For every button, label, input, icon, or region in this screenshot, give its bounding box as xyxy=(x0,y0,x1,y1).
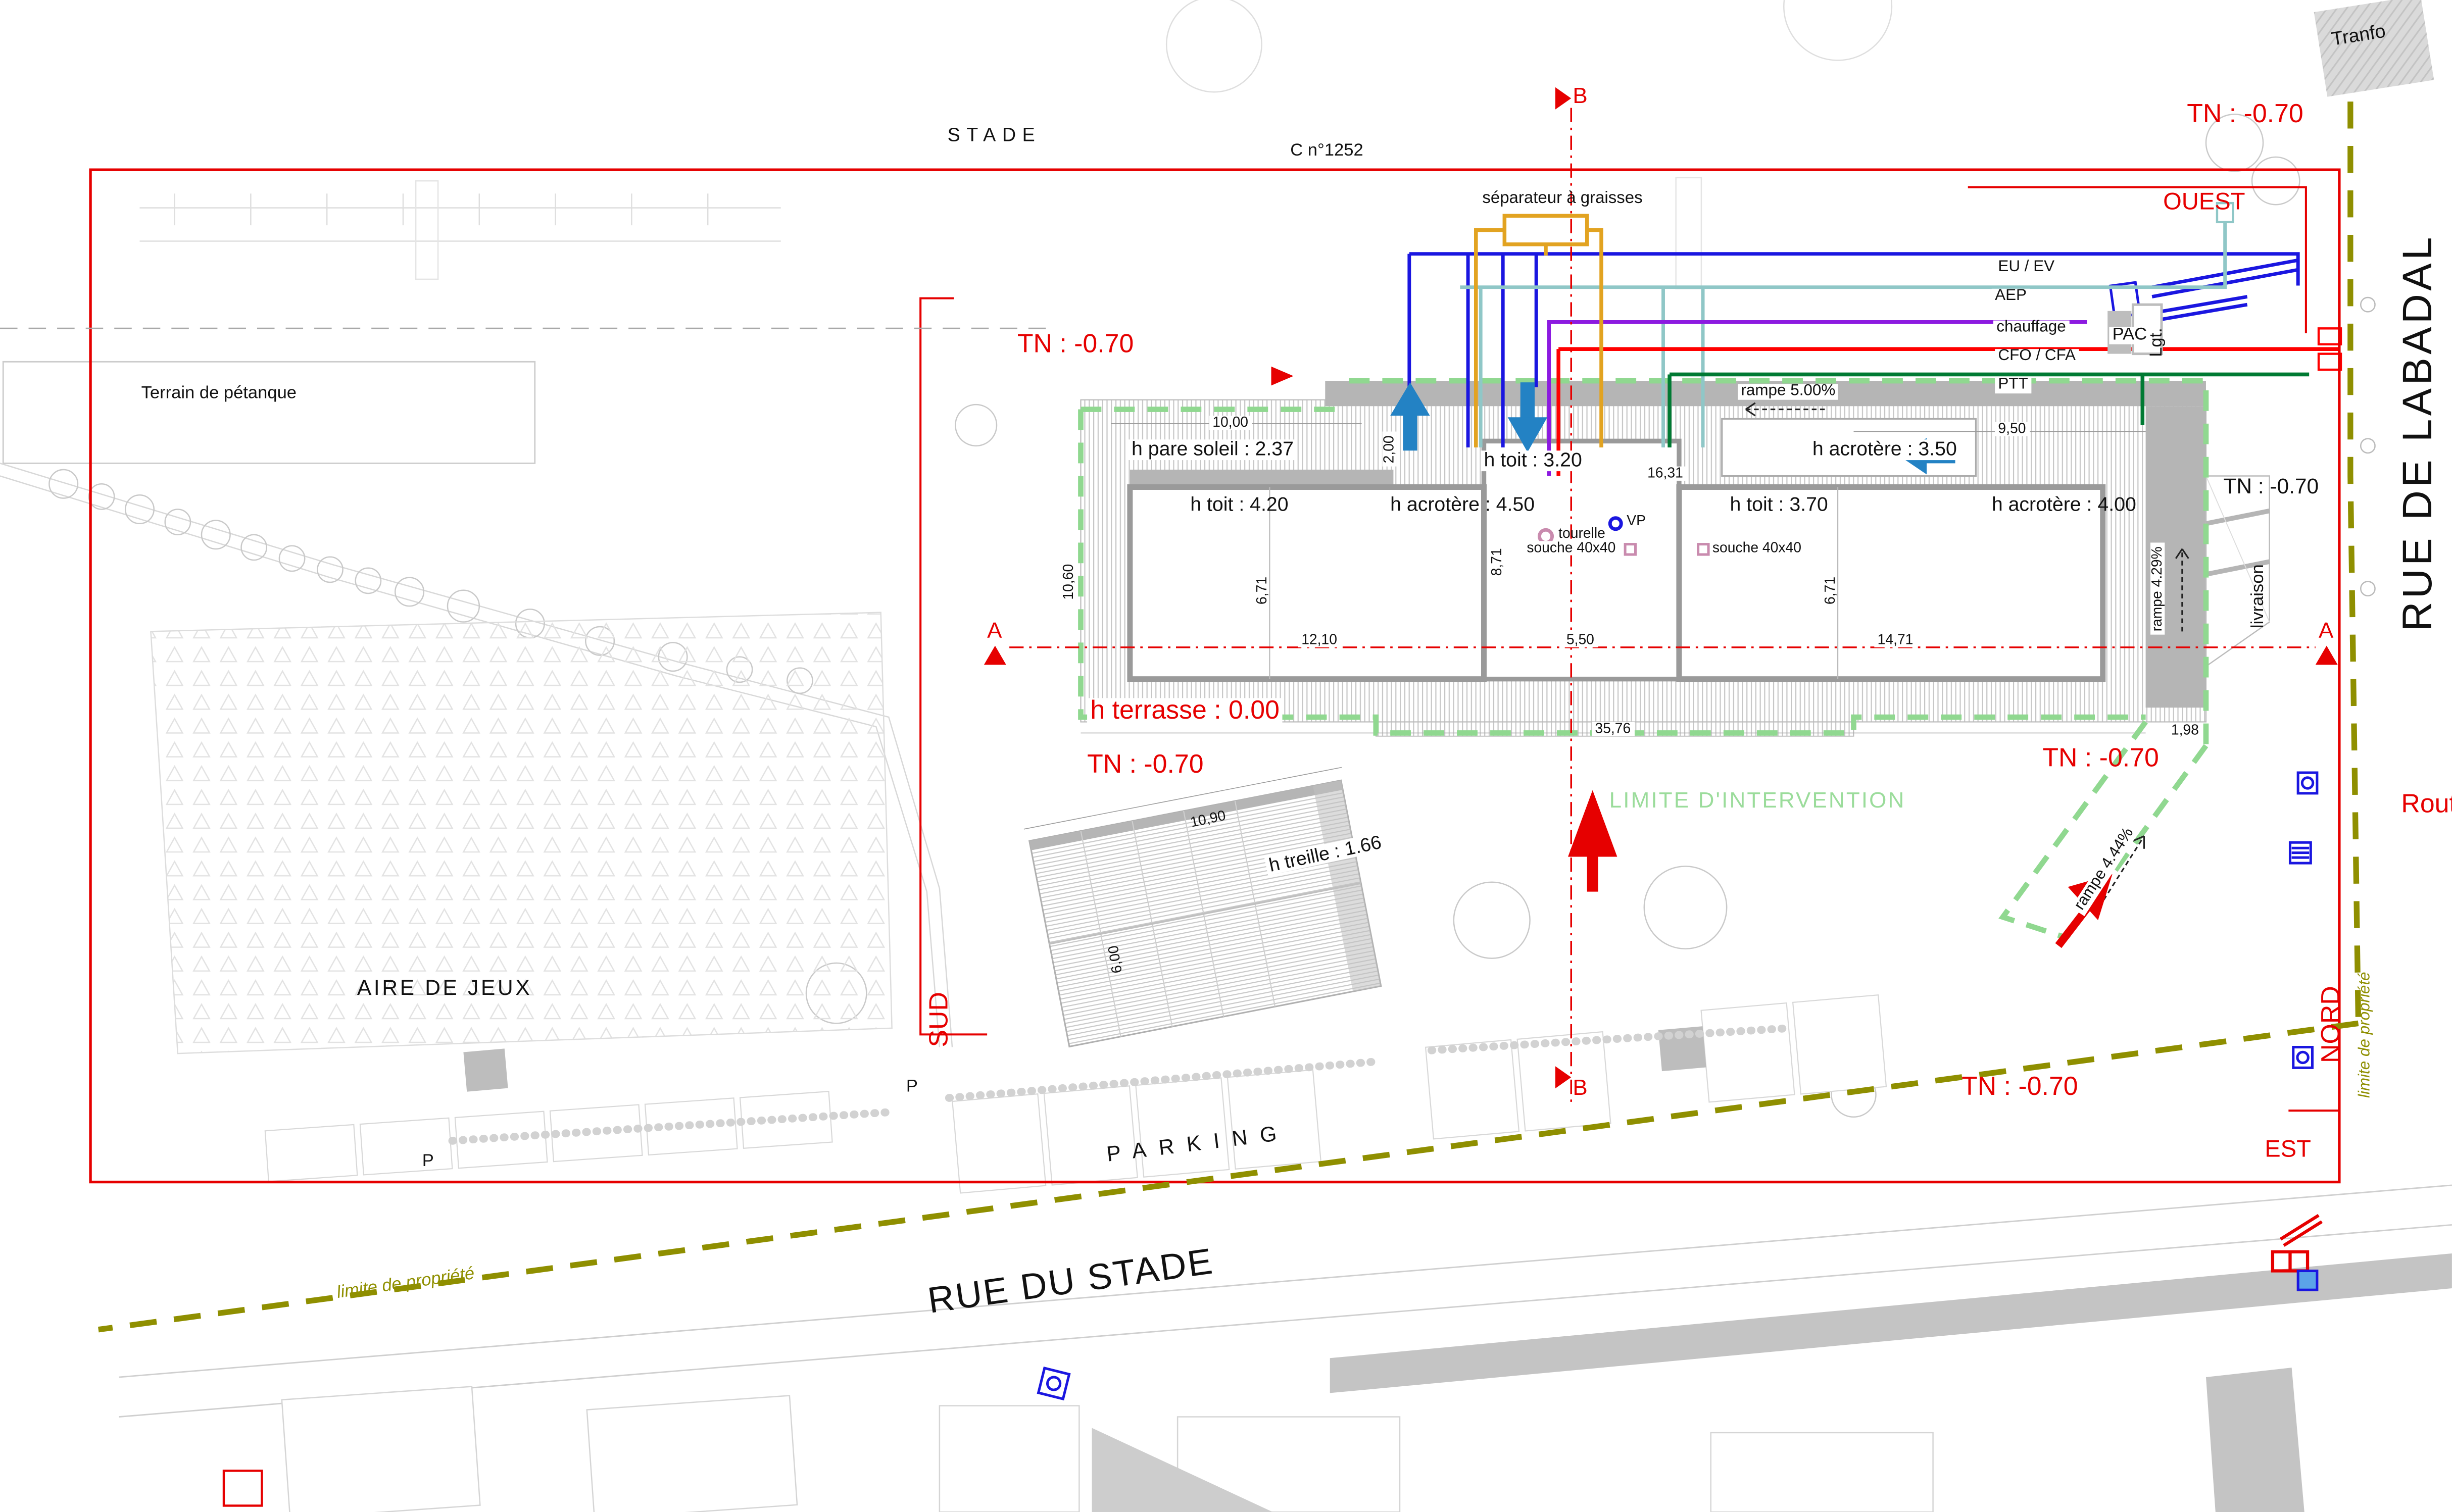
tn-label-east-mid: TN : -0.70 xyxy=(2042,746,2159,773)
parking-p-label-1: P xyxy=(906,1079,918,1097)
utility-label-ptt: PTT xyxy=(1995,378,2031,394)
buildings-south xyxy=(282,1387,1933,1512)
facade-label-nord: NORD xyxy=(2319,986,2346,1063)
sud-bracket xyxy=(920,298,987,1035)
dim-10-00: 10,00 xyxy=(1209,416,1251,430)
dim-2-00: 2,00 xyxy=(1382,432,1397,467)
area-label-stade: STADE xyxy=(948,125,1042,145)
section-a-label-left: A xyxy=(987,619,1002,642)
dim-1-98: 1,98 xyxy=(2168,724,2202,738)
red-flag-symbol xyxy=(1271,367,1294,386)
livraison-label: livraison xyxy=(2250,564,2269,628)
facade-label-ouest: OUEST xyxy=(2163,190,2245,215)
street-label-rue-de-labadal: RUE DE LABADAL xyxy=(2396,234,2439,631)
route-label: Route xyxy=(2401,792,2452,819)
h-pare-soleil-label: h pare soleil : 2.37 xyxy=(1129,439,1297,460)
tn-label-livraison: TN : -0.70 xyxy=(2224,476,2319,498)
tn-label-north: TN : -0.70 xyxy=(1961,1074,2078,1101)
section-b-marker-top xyxy=(1555,87,1571,110)
building-terrace xyxy=(1081,381,2269,736)
tn-label-top-right: TN : -0.70 xyxy=(2187,102,2303,129)
lgt-label: Lgt. xyxy=(2149,328,2167,357)
limite-propriete-label-east: limite de propriété xyxy=(2359,972,2375,1098)
facade-label-sud: SUD xyxy=(927,992,954,1047)
terrain-petanque-label: Terrain de pétanque xyxy=(141,385,297,404)
dim-8-71: 8,71 xyxy=(1490,545,1505,579)
utility-label-chauffage: chauffage xyxy=(1993,321,2069,337)
site-plan: Tranfo TN : -0.70 OUEST RUE DE LABADAL S… xyxy=(0,0,2452,1512)
utility-label-eu-ev: EU / EV xyxy=(1995,260,2057,277)
tn-label-south: TN : -0.70 xyxy=(1087,752,1203,779)
rampe-429-label: rampe 4.29% xyxy=(2150,543,2165,635)
h-acrotere-350-label: h acrotère : 3.50 xyxy=(1809,439,1960,460)
section-a-marker-left xyxy=(984,646,1006,665)
dim-16-31: 16,31 xyxy=(1644,467,1686,481)
dim-12-10: 12,10 xyxy=(1298,633,1340,648)
aire-de-jeux-label: AIRE DE JEUX xyxy=(357,977,532,999)
h-terrasse-label: h terrasse : 0.00 xyxy=(1087,698,1283,725)
section-b-label-top: B xyxy=(1573,84,1587,108)
terrain-petanque-outline xyxy=(3,362,534,463)
vp-label: VP xyxy=(1627,514,1646,529)
boundary-marker-circles xyxy=(2361,297,2375,596)
h-acrotere-400-label: h acrotère : 4.00 xyxy=(1992,495,2136,516)
dim-5-50: 5,50 xyxy=(1563,633,1598,648)
parking-p-label-2: P xyxy=(422,1153,434,1172)
h-toit-420-label: h toit : 4.20 xyxy=(1190,495,1288,516)
parcel-label: C n°1252 xyxy=(1290,143,1363,161)
section-b-label-bottom: B xyxy=(1573,1076,1587,1099)
separateur-label: séparateur à graisses xyxy=(1482,190,1642,208)
facade-label-est: EST xyxy=(2265,1138,2311,1163)
east-wing-roof xyxy=(1679,487,2103,679)
pac-label: PAC xyxy=(2109,327,2150,345)
section-a-marker-right xyxy=(2316,646,2338,665)
h-toit-320-label: h toit : 3.20 xyxy=(1481,450,1585,471)
tranfo-box xyxy=(2314,0,2434,97)
h-acrotere-450-label: h acrotère : 4.50 xyxy=(1390,495,1535,516)
h-toit-370-label: h toit : 3.70 xyxy=(1730,495,1828,516)
dim-14-71: 14,71 xyxy=(1874,633,1916,648)
west-wing-roof xyxy=(1130,487,1484,679)
tn-label-mid-left: TN : -0.70 xyxy=(1017,332,1134,359)
dim-6-71-east: 6,71 xyxy=(1824,577,1838,604)
souche-label-east: souche 40x40 xyxy=(1712,541,1801,556)
dim-10-60: 10,60 xyxy=(1062,561,1076,602)
treille xyxy=(1024,768,1384,1047)
rampe-500-label: rampe 5.00% xyxy=(1738,384,1838,400)
section-a-label-right: A xyxy=(2319,619,2333,642)
utility-label-cfo-cfa: CFO / CFA xyxy=(1995,349,2079,366)
dim-35-76: 35,76 xyxy=(1592,722,1634,736)
souche-label-west: souche 40x40 xyxy=(1524,541,1619,556)
dim-6-71-west: 6,71 xyxy=(1255,577,1270,604)
utility-label-aep: AEP xyxy=(1992,289,2030,306)
dim-9-50: 9,50 xyxy=(1995,422,2029,437)
limite-intervention-label: LIMITE D'INTERVENTION xyxy=(1609,788,1906,812)
